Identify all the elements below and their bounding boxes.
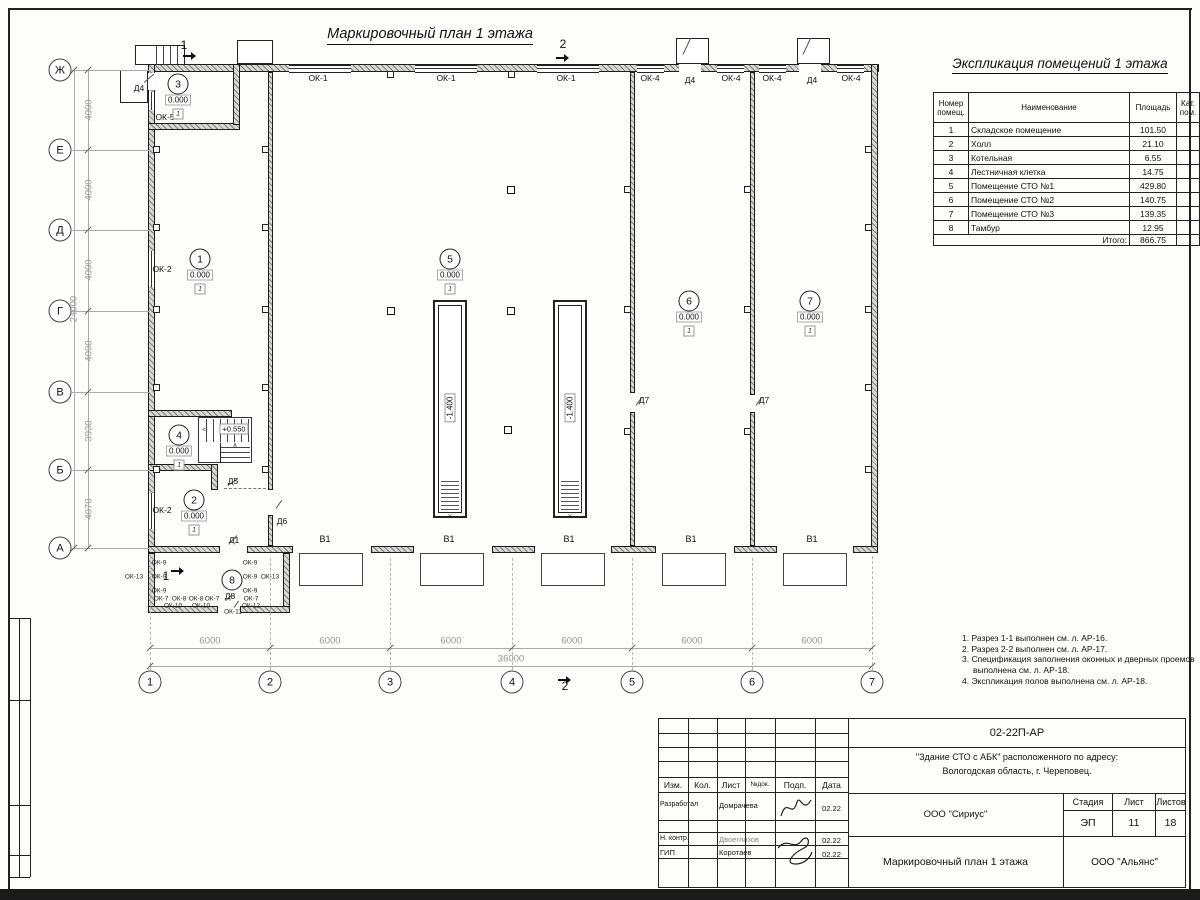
room-elevation: 0.000 [181,511,207,522]
axis-line [72,470,150,471]
dimension-label: 4000 [84,259,95,280]
wall-pilaster [744,186,751,193]
section-arrow [171,570,182,572]
schedule-cell: 8 [934,221,969,235]
schedule-cell: Лестничная клетка [969,165,1130,179]
pit-ladder [441,481,459,513]
wall-pilaster [262,224,269,231]
stage-label: Стадия [1064,794,1112,809]
dimension-label: 4000 [84,340,95,361]
schedule-table: Номер помещ.НаименованиеПлощадьКат. пом.… [933,92,1200,246]
plan-label: ОК-9 [152,560,167,567]
schedule-cell: 12.95 [1130,221,1177,235]
schedule-header: Наименование [969,93,1130,123]
dimension-label: 6000 [681,636,702,647]
plan-label: ∨ [448,512,453,520]
door-swing-dashed [224,488,266,489]
plan-label: ОК-9 [243,560,258,567]
axis-bubble: 4 [501,671,524,694]
plan-label: Д4 [807,75,817,85]
wall-pilaster [865,224,872,231]
plan-label: Д6 [277,516,287,526]
dimension-label: 3930 [84,420,95,441]
plan-label: ОК-10 [164,603,182,610]
schedule-cell: 6 [934,193,969,207]
structure-outline [237,40,273,64]
axis-bubble: В [49,381,72,404]
axis-line [72,311,150,312]
plan-label: ∨ [568,512,573,520]
schedule-header: Кат. пом. [1177,93,1200,123]
signature [774,834,816,870]
plan-label: ОК-9 [243,574,258,581]
frame-line [30,618,31,877]
plan-label: +0.550 [219,424,248,435]
structure-outline [797,38,830,64]
plan-label: -1.400 [445,394,456,423]
wall-pilaster [865,466,872,473]
frame-line [8,877,30,878]
wall [268,515,273,546]
axis-extension-line [390,558,391,670]
drawing-sheet: Маркировочный план 1 этажа Экспликация п… [0,0,1200,900]
plan-label: ОК-1 [308,73,327,83]
axis-bubble: Ж [49,59,72,82]
axis-bubble: 5 [621,671,644,694]
plan-label: ОК-2 [152,264,171,274]
leader-line [276,500,283,509]
gate-leaf [299,553,363,586]
wall-pilaster [744,428,751,435]
schedule-total-label: Итого: [934,235,1130,246]
column [507,186,515,194]
frame-line [1185,718,1186,888]
wall [148,123,240,130]
section-arrow [556,57,567,59]
room-elevation: 0.000 [165,95,191,106]
schedule-cell: 140.75 [1130,193,1177,207]
schedule-cell: 7 [934,207,969,221]
schedule-cell: Складское помещение [969,123,1130,137]
floor-type-marker: 1 [173,109,184,120]
name-ncontrol: Двоеглазов [719,835,759,844]
wall-pilaster [153,306,160,313]
axis-bubble: Д [49,219,72,242]
frame-line [848,718,849,888]
room-number-marker: 1 [190,249,211,270]
wall-pilaster [262,146,269,153]
column [387,307,395,315]
gate-leaf [541,553,605,586]
doc-code: 02-22П-АР [849,719,1185,746]
plan-label: -1.400 [565,394,576,423]
col-izm: Изм. [659,778,687,791]
plan-label: ОК-13 [125,574,143,581]
frame-line [8,8,10,889]
axis-bubble: 1 [139,671,162,694]
plan-label: ∧ [233,441,238,449]
plan-label: Д4 [134,83,144,93]
schedule-cell: 6.55 [1130,151,1177,165]
plan-label: ОК-4 [762,73,781,83]
wall-pilaster [262,466,269,473]
dimension-label: 6000 [440,636,461,647]
plan-label: 1 [163,569,170,583]
frame-line [848,747,1185,748]
dimension-label: 36000 [498,654,524,665]
schedule-header: Номер помещ. [934,93,969,123]
schedule-cell: 5 [934,179,969,193]
window-symbol [717,65,744,73]
note-item: 4. Экспликация полов выполнена см. л. АР… [962,676,1200,687]
plan-label: Д8 [225,591,235,601]
plan-label: ОК-4 [640,73,659,83]
project-name-line2: Вологодская область, г. Череповец. [849,764,1185,778]
schedule-cell [1177,151,1200,165]
org-name: ООО "Сириус" [849,794,1062,835]
wall-pilaster [262,384,269,391]
col-ndok: №док. [746,778,774,791]
plan-label: Д7 [759,395,769,405]
signature [777,794,815,822]
plan-label: ОК-10 [192,603,210,610]
door-opening [679,64,701,72]
plan-label: ОК-1 [436,73,455,83]
schedule-cell [1177,235,1200,246]
axis-extension-line [872,556,873,670]
wall [283,553,290,613]
wall [750,72,755,395]
schedule-cell [1177,179,1200,193]
plan-label: В1 [563,534,574,544]
axis-bubble: Б [49,459,72,482]
plan-label: ОК-4 [721,73,740,83]
stair-divider [220,443,221,463]
room-number-marker: 7 [800,291,821,312]
room-elevation: 0.000 [676,312,702,323]
frame-line [658,858,848,859]
plan-label: ОК-2 [152,505,171,515]
room-elevation: 0.000 [187,270,213,281]
frame-line [848,793,1185,794]
axis-line [72,230,150,231]
role-developer: Разработал [660,801,698,808]
room-schedule-table: Номер помещ.НаименованиеПлощадьКат. пом.… [933,92,1200,246]
stair-steps [150,46,184,64]
wall-pilaster [865,306,872,313]
room-elevation: 0.000 [797,312,823,323]
sheet-number: 11 [1113,811,1155,835]
dimension-label: 6000 [561,636,582,647]
wall-pilaster [153,146,160,153]
wall [630,72,635,393]
window-symbol [759,65,786,73]
dimension-label: 6000 [199,636,220,647]
note-item: 2. Разрез 2-2 выполнен см. л. АР-17. [962,644,1200,655]
room-number-marker: 5 [440,249,461,270]
col-podp: Подп. [776,778,814,791]
room-number-marker: 8 [222,570,243,591]
plan-label: 1 [181,38,188,52]
plan-label: В1 [443,534,454,544]
frame-line [1063,793,1064,888]
dimension-label: 6000 [801,636,822,647]
axis-line [150,666,872,667]
plan-label: В1 [319,534,330,544]
window-symbol [637,65,664,73]
frame-line [717,718,718,888]
schedule-cell: Помещение СТО №2 [969,193,1130,207]
plan-label: 2 [560,37,567,51]
plan-label: Д5 [228,476,238,486]
window-symbol [148,92,155,110]
frame-line [658,718,659,888]
axis-bubble: 6 [741,671,764,694]
dimension-label: 4070 [84,498,95,519]
schedule-cell [1177,137,1200,151]
sheets-total: 18 [1156,811,1185,835]
leader-line [234,601,239,608]
gate-leaf [420,553,484,586]
schedule-total-value: 866.75 [1130,235,1177,246]
structure-outline [676,38,709,64]
frame-line [19,618,20,877]
wall-pilaster [624,306,631,313]
frame-line [1112,793,1113,837]
frame-line [815,718,816,888]
dimension-label: 24000 [69,296,80,322]
plan-label: ОК-8 [172,596,187,603]
wall-pilaster [262,306,269,313]
wall [492,546,535,553]
sheets-label: Листов [1156,794,1186,809]
schedule-cell [1177,123,1200,137]
dimension-label: 4000 [84,179,95,200]
wall-pilaster [387,71,394,78]
schedule-cell [1177,193,1200,207]
frame-line [658,718,1186,719]
section-arrow [183,55,194,57]
frame-line [1189,8,1191,889]
schedule-cell: 101.50 [1130,123,1177,137]
name-developer: Домрачева [719,801,758,810]
schedule-cell: Помещение СТО №1 [969,179,1130,193]
wall-pilaster [624,186,631,193]
wall [611,546,656,553]
plan-label: ОК-7 [154,596,169,603]
frame-line [775,718,776,888]
wall-pilaster [153,224,160,231]
plan-label: ОК-9 [152,588,167,595]
frame-line [658,832,848,833]
column [507,307,515,315]
frame-line [745,718,746,888]
schedule-cell: 2 [934,137,969,151]
pit-ladder [561,481,579,513]
axis-line [72,150,150,151]
frame-line [1063,810,1185,811]
axis-bubble: 7 [861,671,884,694]
project-name-line1: "Здание СТО с АБК" расположенного по адр… [849,750,1185,764]
frame-line [658,792,848,793]
wall [853,546,878,553]
floor-type-marker: 1 [805,326,816,337]
sheet-label: Лист [1113,794,1155,809]
window-symbol [537,65,599,73]
schedule-cell: 139.35 [1130,207,1177,221]
wall-pilaster [865,146,872,153]
dimension-label: 6000 [319,636,340,647]
note-item: 3. Спецификация заполнения оконных и две… [962,654,1200,675]
date-developer: 02.22 [816,803,847,813]
stage-value: ЭП [1064,811,1112,835]
dimension-label: 4000 [84,99,95,120]
frame-line [658,747,848,748]
org2-name: ООО "Альянс" [1064,837,1185,887]
notes-list: 1. Разрез 1-1 выполнен см. л. АР-16.2. Р… [962,633,1200,686]
axis-line [72,70,150,71]
schedule-cell: Тамбур [969,221,1130,235]
axis-line [72,392,150,393]
schedule-cell: 14.75 [1130,165,1177,179]
name-gip: Коротаев [719,848,751,857]
frame-line [658,820,848,821]
wall [871,64,878,553]
plan-label: Д4 [685,75,695,85]
wall-pilaster [153,466,160,473]
doc-title: Маркировочный план 1 этажа [849,837,1062,887]
plan-label: ОК-7 [244,596,259,603]
schedule-cell: 1 [934,123,969,137]
frame-line [688,718,689,888]
room-number-marker: 3 [168,74,189,95]
plan-label: ОК-8 [189,596,204,603]
wall [148,410,232,417]
floor-type-marker: 1 [445,284,456,295]
role-ncontrol: Н. контр. [660,835,689,842]
frame-line [848,836,1185,837]
wall-pilaster [624,428,631,435]
frame-line [8,8,1192,10]
wall [148,546,220,553]
column [504,426,512,434]
plan-label: Д1 [229,535,239,545]
axis-bubble: 3 [379,671,402,694]
axis-extension-line [752,558,753,670]
schedule-cell [1177,221,1200,235]
frame-line [658,777,848,778]
schedule-cell: Помещение СТО №3 [969,207,1130,221]
plan-label: В1 [685,534,696,544]
door-opening [799,64,821,72]
col-data: Дата [816,778,847,791]
plan-label: 2 [562,679,569,693]
frame-line [658,887,1186,888]
plan-label: В1 [806,534,817,544]
floor-type-marker: 1 [174,460,185,471]
schedule-cell [1177,165,1200,179]
frame-line [658,845,848,846]
wall [211,464,218,490]
floor-type-marker: 1 [189,525,200,536]
date-ncontrol: 02.22 [816,835,847,845]
wall [268,72,273,490]
col-kol: Кол. [689,778,716,791]
axis-bubble: Е [49,139,72,162]
schedule-cell: 3 [934,151,969,165]
plan-label: ОК-12 [242,603,260,610]
wall-pilaster [744,306,751,313]
room-number-marker: 4 [169,425,190,446]
gate-leaf [783,553,847,586]
axis-bubble: 2 [259,671,282,694]
plan-label: ОК-9 [243,588,258,595]
plan-label: < [202,427,206,434]
note-item: 1. Разрез 1-1 выполнен см. л. АР-16. [962,633,1200,644]
room-elevation: 0.000 [166,446,192,457]
schedule-cell: 429.80 [1130,179,1177,193]
sheet-bottom-edge [0,889,1200,900]
plan-label: ОК-7 [205,596,220,603]
plan-label: ОК-11 [224,609,242,616]
wall-pilaster [153,384,160,391]
wall [734,546,777,553]
wall-pilaster [508,71,515,78]
schedule-cell: 4 [934,165,969,179]
window-symbol [415,65,477,73]
frame-line [658,761,848,762]
plan-label: ОК-1 [556,73,575,83]
axis-extension-line [632,558,633,670]
wall-pilaster [865,384,872,391]
plan-label: ОК-13 [261,574,279,581]
schedule-cell: Котельная [969,151,1130,165]
role-gip: ГИП [660,848,675,857]
axis-bubble: А [49,537,72,560]
wall [233,64,240,125]
floor-type-marker: 1 [684,326,695,337]
room-elevation: 0.000 [437,270,463,281]
wall [371,546,414,553]
axis-line [72,548,150,549]
schedule-header: Площадь [1130,93,1177,123]
frame-line [658,733,848,734]
wall [247,546,293,553]
plan-label: ОК-4 [841,73,860,83]
room-number-marker: 2 [184,490,205,511]
col-list: Лист [718,778,744,791]
window-symbol [837,65,864,73]
room-number-marker: 6 [679,291,700,312]
frame-line [1155,793,1156,837]
window-symbol [289,65,351,73]
floor-type-marker: 1 [195,284,206,295]
gate-leaf [662,553,726,586]
schedule-cell: Холл [969,137,1130,151]
plan-label: Д7 [639,395,649,405]
schedule-cell [1177,207,1200,221]
schedule-cell: 21.10 [1130,137,1177,151]
